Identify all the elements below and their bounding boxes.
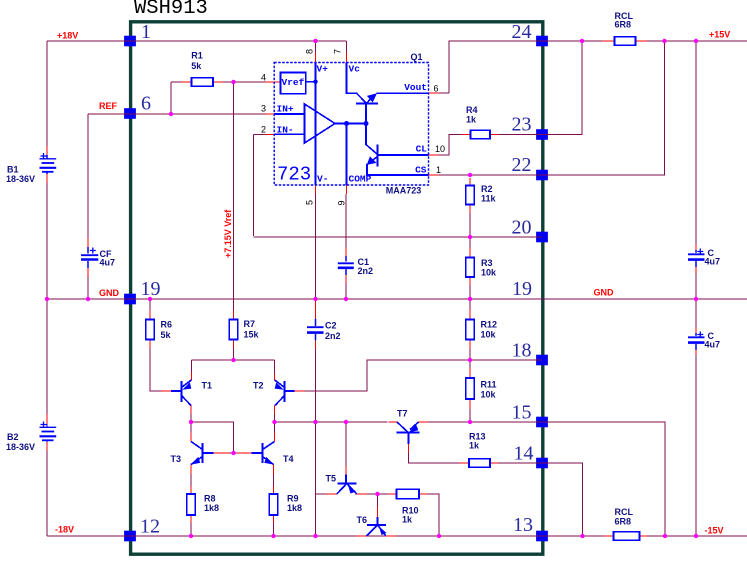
svg-text:19: 19 xyxy=(512,278,532,300)
svg-text:-18V: -18V xyxy=(55,525,74,535)
svg-text:R6: R6 xyxy=(161,320,173,330)
svg-text:6R8: 6R8 xyxy=(615,517,632,527)
svg-text:23: 23 xyxy=(512,114,532,136)
svg-text:Q1: Q1 xyxy=(411,52,423,62)
svg-text:12: 12 xyxy=(140,515,160,537)
svg-text:1k8: 1k8 xyxy=(204,503,219,513)
svg-text:2n2: 2n2 xyxy=(325,331,341,341)
svg-text:R1: R1 xyxy=(191,51,203,61)
svg-text:Vout: Vout xyxy=(404,82,427,93)
svg-text:10: 10 xyxy=(435,144,445,154)
svg-text:+7.15V Vref: +7.15V Vref xyxy=(223,209,233,258)
svg-text:IN-: IN- xyxy=(277,125,294,136)
svg-text:3: 3 xyxy=(261,104,266,114)
svg-text:-15V: -15V xyxy=(705,526,724,536)
svg-text:RCL: RCL xyxy=(615,507,634,517)
svg-text:WSH913: WSH913 xyxy=(134,0,208,20)
svg-text:R8: R8 xyxy=(204,494,216,504)
svg-text:7: 7 xyxy=(333,49,343,54)
svg-text:R7: R7 xyxy=(244,319,256,329)
svg-text:2: 2 xyxy=(261,125,266,135)
svg-text:4: 4 xyxy=(261,73,266,83)
svg-text:COMP: COMP xyxy=(349,174,372,185)
svg-text:5: 5 xyxy=(305,200,315,205)
svg-text:T6: T6 xyxy=(357,515,368,525)
svg-text:R11: R11 xyxy=(481,380,497,390)
svg-text:18-36V: 18-36V xyxy=(6,174,35,184)
svg-text:2n2: 2n2 xyxy=(358,266,374,276)
svg-text:18: 18 xyxy=(512,340,532,362)
svg-text:15: 15 xyxy=(512,402,532,424)
svg-text:CL: CL xyxy=(416,144,428,155)
svg-text:13: 13 xyxy=(513,514,533,536)
svg-text:6: 6 xyxy=(141,92,151,114)
svg-text:CS: CS xyxy=(415,164,427,175)
svg-text:MAA723: MAA723 xyxy=(386,186,422,196)
svg-text:T2: T2 xyxy=(253,381,264,391)
svg-text:R9: R9 xyxy=(287,494,299,504)
svg-text:22: 22 xyxy=(512,154,532,176)
svg-text:Vc: Vc xyxy=(349,64,361,75)
svg-text:T5: T5 xyxy=(326,474,337,484)
svg-text:1k: 1k xyxy=(469,441,480,451)
svg-text:V-: V- xyxy=(317,174,328,185)
svg-text:723: 723 xyxy=(277,164,311,186)
svg-text:1: 1 xyxy=(141,21,151,43)
svg-text:V+: V+ xyxy=(317,64,329,75)
svg-text:24: 24 xyxy=(512,21,532,43)
svg-text:T1: T1 xyxy=(202,381,213,391)
svg-text:B1: B1 xyxy=(7,165,19,175)
svg-text:IN+: IN+ xyxy=(277,104,294,115)
svg-text:T4: T4 xyxy=(283,454,294,464)
svg-text:19: 19 xyxy=(141,278,161,300)
svg-text:9: 9 xyxy=(337,200,347,205)
svg-text:1: 1 xyxy=(436,165,441,175)
svg-text:20: 20 xyxy=(512,217,532,239)
svg-text:15k: 15k xyxy=(244,330,260,340)
svg-text:B2: B2 xyxy=(7,432,19,442)
svg-text:5k: 5k xyxy=(161,330,172,340)
svg-text:10k: 10k xyxy=(481,330,497,340)
svg-text:10k: 10k xyxy=(481,390,497,400)
svg-text:R3: R3 xyxy=(481,258,493,268)
svg-text:T7: T7 xyxy=(397,409,408,419)
svg-text:REF: REF xyxy=(99,101,118,111)
svg-text:Vref: Vref xyxy=(282,77,305,88)
svg-text:1k: 1k xyxy=(466,115,477,125)
svg-text:10k: 10k xyxy=(481,268,497,278)
svg-text:GND: GND xyxy=(99,288,120,298)
svg-text:4u7: 4u7 xyxy=(705,257,721,267)
svg-text:T3: T3 xyxy=(171,454,182,464)
svg-text:5k: 5k xyxy=(191,61,202,71)
svg-text:14: 14 xyxy=(514,442,534,464)
svg-text:+18V: +18V xyxy=(57,31,78,41)
svg-text:11k: 11k xyxy=(481,194,497,204)
svg-text:18-36V: 18-36V xyxy=(6,442,35,452)
svg-text:4u7: 4u7 xyxy=(100,258,116,268)
svg-text:R12: R12 xyxy=(481,320,498,330)
svg-text:4u7: 4u7 xyxy=(705,340,721,350)
svg-text:6R8: 6R8 xyxy=(615,20,632,30)
svg-text:GND: GND xyxy=(594,288,615,298)
svg-text:R4: R4 xyxy=(466,105,478,115)
svg-text:1k: 1k xyxy=(402,515,413,525)
svg-text:C2: C2 xyxy=(325,321,337,331)
svg-text:8: 8 xyxy=(305,49,315,54)
svg-text:R2: R2 xyxy=(481,184,493,194)
svg-text:6: 6 xyxy=(434,84,439,94)
svg-text:+15V: +15V xyxy=(709,30,730,40)
svg-text:1k8: 1k8 xyxy=(287,503,302,513)
